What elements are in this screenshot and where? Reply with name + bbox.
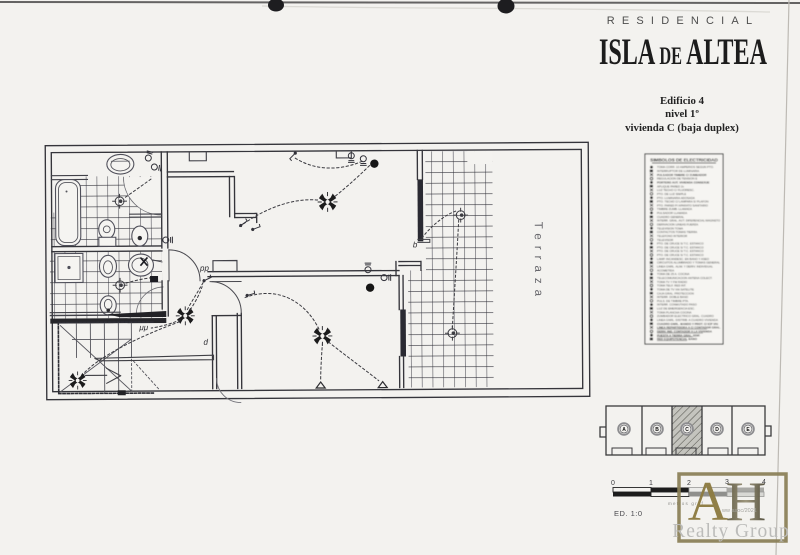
- svg-text:ED. 1:0: ED. 1:0: [614, 509, 643, 518]
- svg-text:μμ: μμ: [138, 323, 148, 332]
- svg-text:nivel 1º: nivel 1º: [665, 108, 699, 120]
- svg-text:Terraza: Terraza: [532, 222, 544, 302]
- svg-text:d: d: [203, 338, 208, 347]
- svg-text:pp: pp: [199, 264, 210, 273]
- svg-text:ww asoc/2021: ww asoc/2021: [721, 508, 757, 514]
- svg-text:A: A: [622, 427, 626, 433]
- svg-text:0: 0: [611, 480, 615, 487]
- svg-text:vivienda C (baja duplex): vivienda C (baja duplex): [625, 122, 739, 134]
- svg-text:C: C: [685, 427, 689, 433]
- svg-text:b: b: [413, 240, 418, 249]
- svg-text:Realty Group: Realty Group: [672, 521, 790, 542]
- svg-text:D: D: [715, 427, 719, 433]
- svg-text:1: 1: [649, 480, 653, 487]
- svg-text:Edificio 4: Edificio 4: [660, 95, 705, 107]
- svg-text:RESIDENCIAL: RESIDENCIAL: [607, 15, 760, 27]
- svg-text:SIMBOLOS DE ELECTRICIDAD: SIMBOLOS DE ELECTRICIDAD: [650, 158, 718, 163]
- svg-text:B: B: [655, 427, 659, 433]
